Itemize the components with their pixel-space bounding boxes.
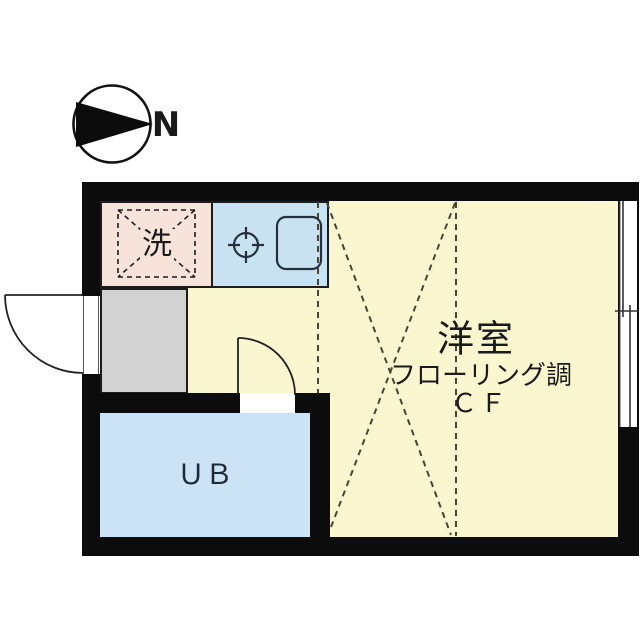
unit-bath-label: ＵＢ [177, 461, 233, 489]
kitchen-area [211, 201, 329, 288]
interior-wall-bath-right [310, 393, 330, 537]
floor-plan: N 洗 洋室 フローリング調 ＣＦ ＵＢ [0, 0, 640, 640]
north-compass-icon [74, 86, 151, 163]
north-label: N [152, 108, 180, 142]
entrance-door-arc [5, 295, 83, 373]
north-compass-needle-icon [76, 102, 153, 147]
entrance-door-opening [82, 296, 100, 374]
main-room-flooring: フローリング調 [390, 363, 572, 389]
main-room-name: 洋室 [437, 321, 515, 358]
washer-label: 洗 [140, 229, 174, 261]
entrance-hall [100, 288, 188, 394]
bath-door-opening [240, 393, 295, 413]
main-room-floor-code: ＣＦ [451, 391, 509, 417]
window-opening [620, 201, 637, 427]
